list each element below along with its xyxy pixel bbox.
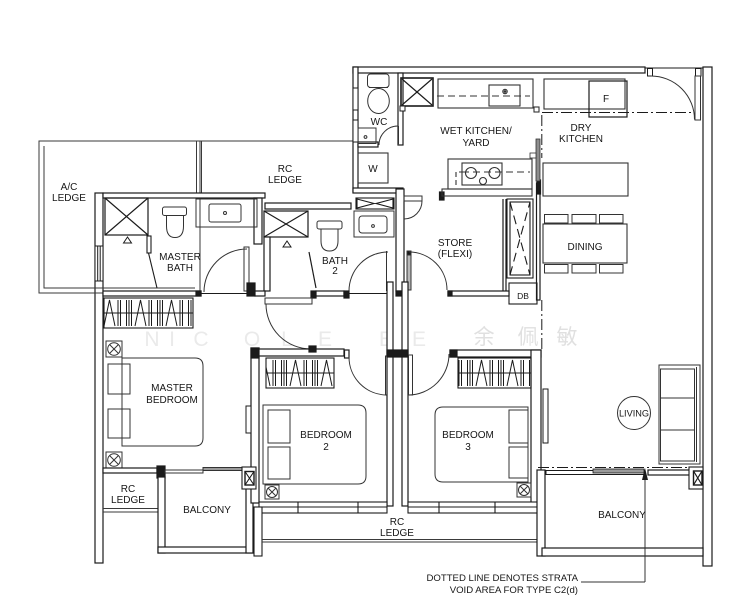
svg-text:BEDROOM: BEDROOM <box>442 430 494 441</box>
svg-text:DOTTED LINE DENOTES STRATA: DOTTED LINE DENOTES STRATA <box>426 573 578 584</box>
svg-text:RC: RC <box>278 164 292 175</box>
svg-text:RC: RC <box>121 484 135 495</box>
svg-text:MASTER: MASTER <box>151 383 193 394</box>
svg-text:MASTER: MASTER <box>159 252 201 263</box>
svg-text:佩: 佩 <box>518 326 539 349</box>
svg-text:DRY: DRY <box>571 123 592 134</box>
svg-text:LEDGE: LEDGE <box>111 495 145 506</box>
svg-text:BEDROOM: BEDROOM <box>146 395 198 406</box>
svg-text:BATH: BATH <box>167 263 193 274</box>
svg-text:BALCONY: BALCONY <box>183 505 231 516</box>
svg-text:敏: 敏 <box>557 326 578 349</box>
svg-text:KITCHEN: KITCHEN <box>559 134 603 145</box>
svg-text:BALCONY: BALCONY <box>598 510 646 521</box>
svg-text:LEDGE: LEDGE <box>52 193 86 204</box>
svg-text:DINING: DINING <box>568 242 603 253</box>
svg-text:2: 2 <box>323 442 329 453</box>
svg-text:3: 3 <box>465 442 471 453</box>
svg-text:I: I <box>169 328 175 351</box>
svg-text:VOID AREA FOR TYPE C2(d): VOID AREA FOR TYPE C2(d) <box>450 585 578 596</box>
svg-text:STORE: STORE <box>438 238 473 249</box>
svg-text:LEDGE: LEDGE <box>380 528 414 539</box>
svg-text:A/C: A/C <box>61 182 78 193</box>
svg-text:LEDGE: LEDGE <box>268 175 302 186</box>
svg-text:YARD: YARD <box>462 138 489 149</box>
svg-text:BEDROOM: BEDROOM <box>300 430 352 441</box>
svg-text:WET KITCHEN/: WET KITCHEN/ <box>440 126 512 137</box>
svg-text:DB: DB <box>517 291 529 301</box>
svg-text:余: 余 <box>474 326 495 349</box>
svg-text:LIVING: LIVING <box>619 409 649 419</box>
svg-text:E: E <box>412 328 426 351</box>
svg-text:2: 2 <box>332 266 338 277</box>
svg-text:WC: WC <box>371 117 388 128</box>
svg-text:N: N <box>144 328 159 351</box>
svg-text:RC: RC <box>390 517 404 528</box>
svg-text:F: F <box>603 94 609 105</box>
svg-text:(FLEXI): (FLEXI) <box>438 249 472 260</box>
svg-text:E: E <box>318 328 332 351</box>
svg-text:C: C <box>193 328 208 351</box>
svg-text:W: W <box>368 164 378 175</box>
